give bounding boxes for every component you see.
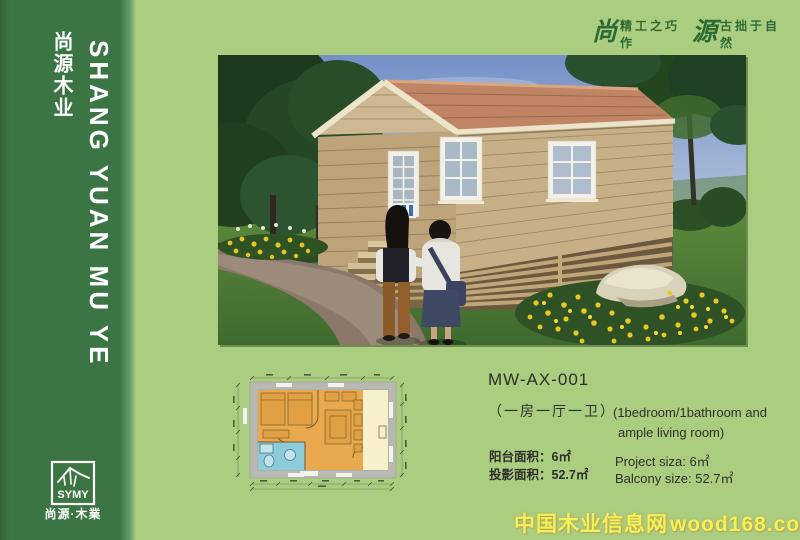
product-type-chinese: （一房一厅一卫） [488, 401, 616, 421]
product-type-english-line2: ample living room) [613, 423, 767, 443]
cabin-photo [218, 55, 746, 345]
project-size-en: Project siza: 6㎡ [615, 453, 734, 470]
brand-sidebar: 尚源木业 SHANG YUAN MU YE SYMY 尚源·木業 [0, 0, 136, 540]
slogan-char-shang: 尚 [592, 12, 617, 48]
product-model: MW-AX-001 [488, 370, 788, 390]
brand-name-chinese: 尚源木业 [50, 31, 72, 119]
area-specs-chinese: 阳台面积：6㎡ 投影面积：52.7㎡ [489, 448, 588, 484]
balcony-area-cn: 阳台面积：6㎡ [489, 448, 588, 466]
brand-slogan: 尚 精工之巧作 源 古拙于自然 [592, 12, 792, 52]
product-info: MW-AX-001 （一房一厅一卫） (1bedroom/1bathroom a… [488, 370, 788, 390]
slogan-phrase-2: 古拙于自然 [720, 17, 788, 51]
symy-logo-icon: SYMY [50, 460, 96, 506]
product-type-english-line1: (1bedroom/1bathroom and [613, 403, 767, 423]
balcony-size-en: Balcony size: 52.7㎡ [615, 470, 734, 487]
logo-caption: 尚源·木業 [38, 505, 108, 522]
area-specs-english: Project siza: 6㎡ Balcony size: 52.7㎡ [615, 453, 734, 487]
footer-site-url: wood168.com [670, 513, 800, 536]
slogan-char-yuan: 源 [692, 12, 717, 48]
footer-site-name: 中国木业信息网 [514, 513, 668, 536]
svg-text:SYMY: SYMY [57, 489, 89, 501]
product-type-english: (1bedroom/1bathroom and ample living roo… [613, 403, 767, 443]
floor-plan [230, 370, 410, 494]
company-logo: SYMY [50, 460, 96, 511]
cabin-window-1 [438, 137, 484, 204]
slogan-phrase-1: 精工之巧作 [620, 17, 688, 51]
brand-name-english: SHANG YUAN MU YE [83, 40, 114, 367]
cabin-window-2 [546, 141, 598, 202]
footer-site-link[interactable]: 中国木业信息网wood168.com [514, 508, 800, 538]
brochure-page: 尚源木业 SHANG YUAN MU YE SYMY 尚源·木業 尚 精工之巧作… [0, 0, 800, 540]
projection-area-cn: 投影面积：52.7㎡ [489, 466, 588, 484]
